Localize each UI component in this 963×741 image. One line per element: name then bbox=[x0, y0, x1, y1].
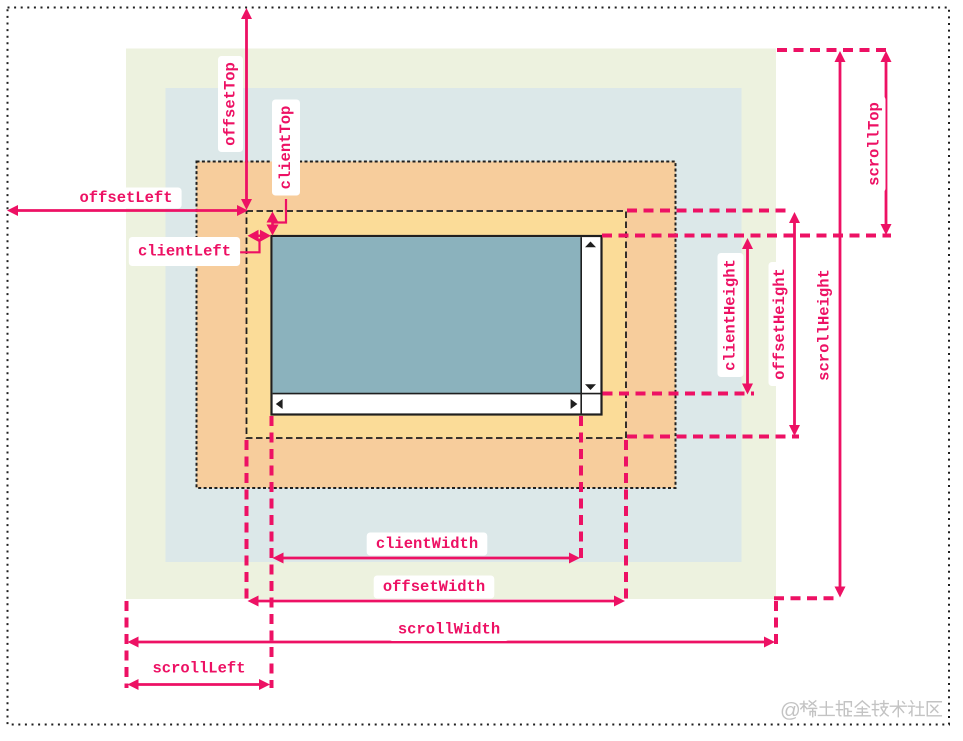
svg-text:clientWidth: clientWidth bbox=[376, 535, 478, 553]
svg-text:offsetWidth: offsetWidth bbox=[383, 578, 485, 596]
svg-text:offsetTop: offsetTop bbox=[222, 62, 240, 146]
svg-text:clientLeft: clientLeft bbox=[138, 243, 231, 261]
svg-text:clientTop: clientTop bbox=[277, 106, 295, 190]
svg-text:scrollWidth: scrollWidth bbox=[398, 621, 500, 639]
svg-text:scrollHeight: scrollHeight bbox=[816, 269, 834, 381]
svg-text:offsetHeight: offsetHeight bbox=[771, 268, 789, 380]
svg-text:clientHeight: clientHeight bbox=[722, 259, 740, 371]
svg-text:@: @ bbox=[780, 699, 801, 722]
svg-text:offsetLeft: offsetLeft bbox=[79, 189, 172, 207]
svg-text:scrollTop: scrollTop bbox=[866, 102, 884, 186]
svg-text:scrollLeft: scrollLeft bbox=[152, 660, 245, 678]
